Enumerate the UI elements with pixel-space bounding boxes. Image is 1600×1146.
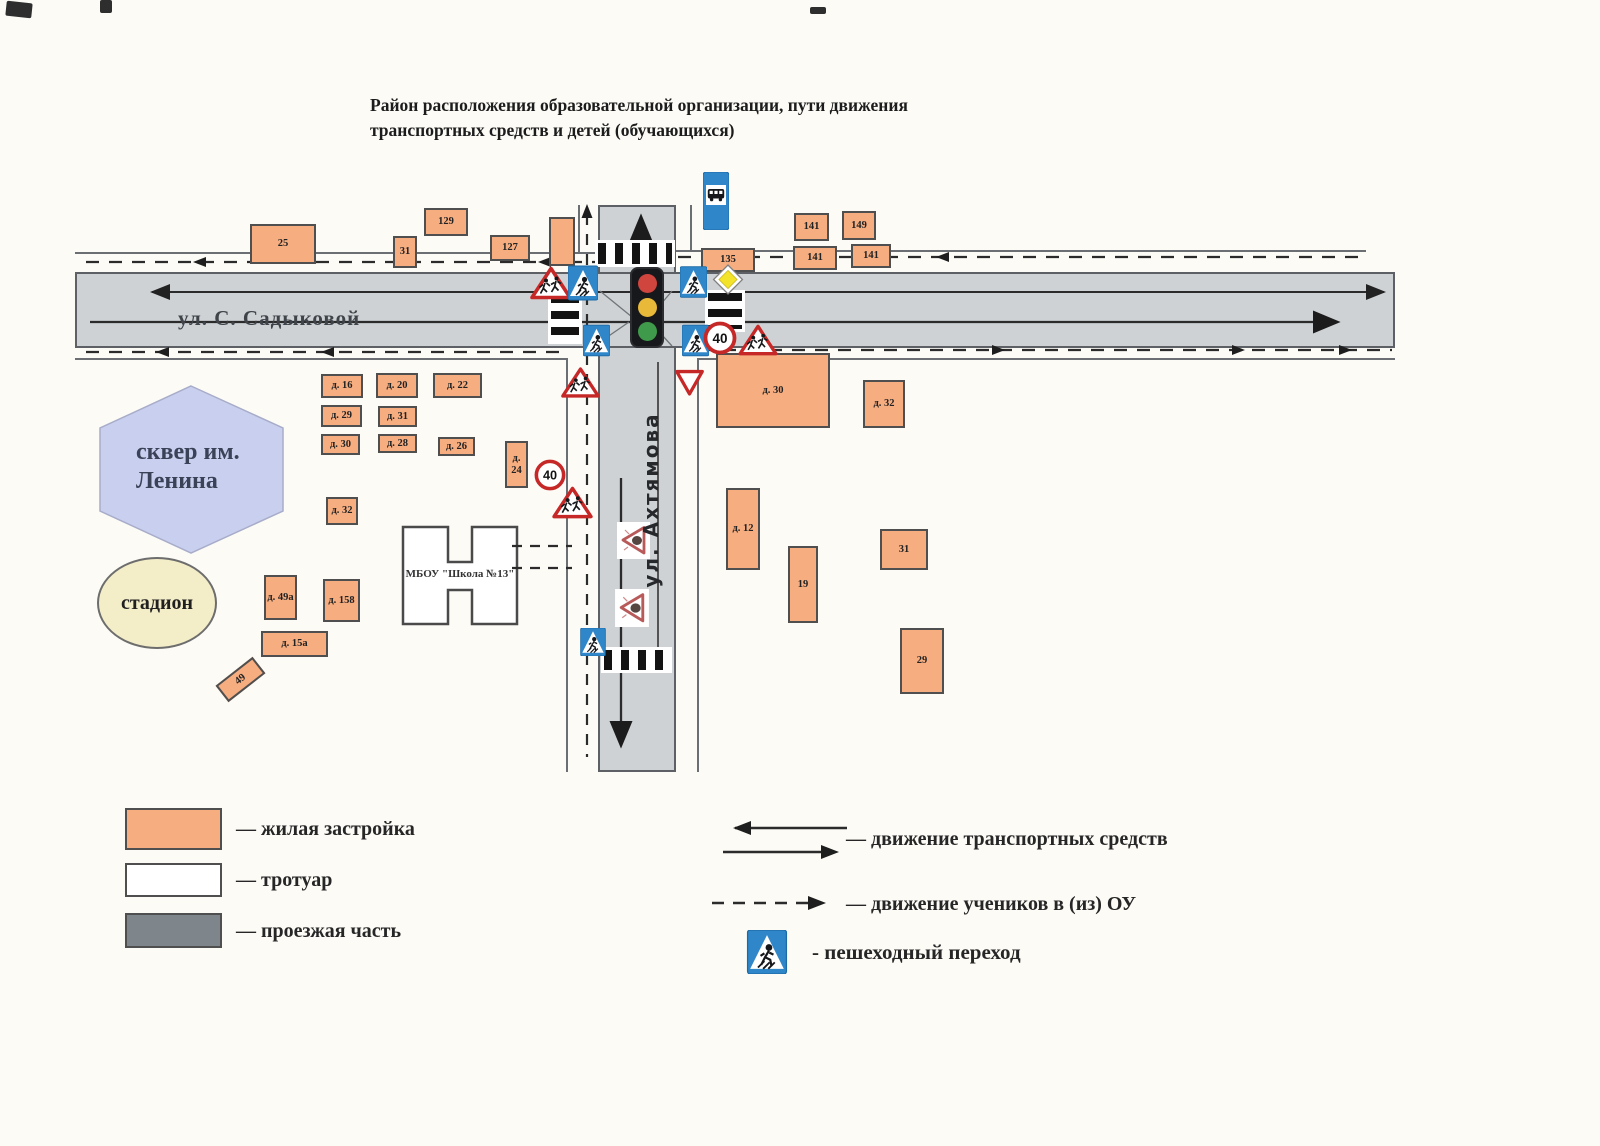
children-warning-icon — [561, 366, 600, 399]
building: 141 — [794, 213, 829, 241]
building: д. 22 — [433, 373, 482, 398]
park-label: сквер им. Ленина — [136, 438, 306, 496]
ped-crossing-icon — [580, 628, 606, 656]
building: 19 — [788, 546, 818, 623]
legend-label-vehicle-traffic: — движение транспортных средств — [846, 828, 1168, 851]
building: 127 — [490, 235, 530, 261]
building: 29 — [900, 628, 944, 694]
speed-limit-40-icon: 40 — [703, 321, 737, 355]
building: 141 — [793, 246, 837, 270]
traffic-light-red — [638, 274, 657, 293]
sidewalk-line — [566, 358, 568, 772]
children-warning-icon — [530, 266, 572, 300]
bus-stop-icon — [703, 172, 729, 230]
student-route-arrow-icon — [708, 893, 848, 915]
building: д. 32 — [326, 497, 358, 525]
building: 49 — [216, 657, 266, 702]
building: д. 26 — [438, 437, 475, 456]
legend-label-crosswalk: - пешеходный переход — [812, 940, 1021, 965]
ped-crossing-icon — [568, 262, 598, 304]
traffic-light-green — [638, 322, 657, 341]
sidewalk-line — [75, 358, 566, 360]
building: 129 — [424, 208, 468, 236]
priority-road-icon — [712, 263, 744, 296]
building: 25 — [250, 224, 316, 264]
ped-crossing-icon — [583, 317, 610, 364]
traffic-light-icon — [630, 267, 664, 348]
building: д. 31 — [378, 406, 417, 427]
street-label-akhtyamova: ул. Ахтямова — [639, 375, 663, 625]
building: д. 29 — [321, 405, 362, 427]
building: д. 30 — [716, 353, 830, 428]
stadium-area: стадион — [97, 557, 217, 649]
building: д. 158 — [323, 579, 360, 622]
sidewalk-line — [697, 358, 699, 772]
route-scheme-map: Район расположения образовательной орган… — [0, 0, 1600, 1146]
building: д. 49а — [264, 575, 297, 620]
svg-text:40: 40 — [543, 469, 557, 483]
vehicle-traffic-arrows-icon — [705, 812, 855, 864]
crosswalk-zebra — [601, 647, 672, 673]
building: д. 20 — [376, 373, 418, 398]
legend-label-roadway: — проезжая часть — [236, 920, 401, 943]
sidewalk-line — [690, 205, 692, 252]
legend-label-student-route: — движение учеников в (из) ОУ — [846, 893, 1136, 916]
give-way-icon — [674, 367, 705, 398]
sidewalk-line — [676, 250, 1366, 252]
legend-label-residential: — жилая застройка — [236, 818, 415, 841]
stadium-label: стадион — [121, 592, 193, 615]
building: д. 28 — [378, 434, 417, 453]
children-warning-icon — [551, 486, 594, 519]
scan-artifact — [810, 7, 826, 14]
building: 31 — [393, 236, 417, 268]
building: 31 — [880, 529, 928, 570]
svg-text:40: 40 — [712, 331, 727, 346]
building: д. 12 — [726, 488, 760, 570]
building: д. 15а — [261, 631, 328, 657]
legend-swatch-sidewalk — [125, 863, 222, 897]
legend-label-sidewalk: — тротуар — [236, 869, 332, 892]
street-label-sadykova: ул. С. Садыковой — [178, 306, 360, 331]
ped-crossing-icon — [680, 262, 707, 302]
school-label: МБОУ "Школа №13" — [400, 568, 520, 580]
scan-artifact — [5, 1, 32, 19]
building: 141 — [851, 244, 891, 268]
legend-swatch-residential — [125, 808, 222, 850]
children-warning-icon — [738, 324, 778, 356]
sidewalk-line — [578, 205, 580, 252]
building: д. 30 — [321, 434, 360, 455]
scan-artifact — [100, 0, 112, 13]
building — [549, 217, 575, 266]
building: д. 24 — [505, 441, 528, 488]
building: 149 — [842, 211, 876, 240]
building: д. 16 — [321, 374, 363, 398]
traffic-light-yellow — [638, 298, 657, 317]
legend-swatch-roadway — [125, 913, 222, 948]
building: д. 32 — [863, 380, 905, 428]
page-title: Район расположения образовательной орган… — [370, 93, 1006, 144]
crosswalk-zebra — [595, 240, 675, 267]
